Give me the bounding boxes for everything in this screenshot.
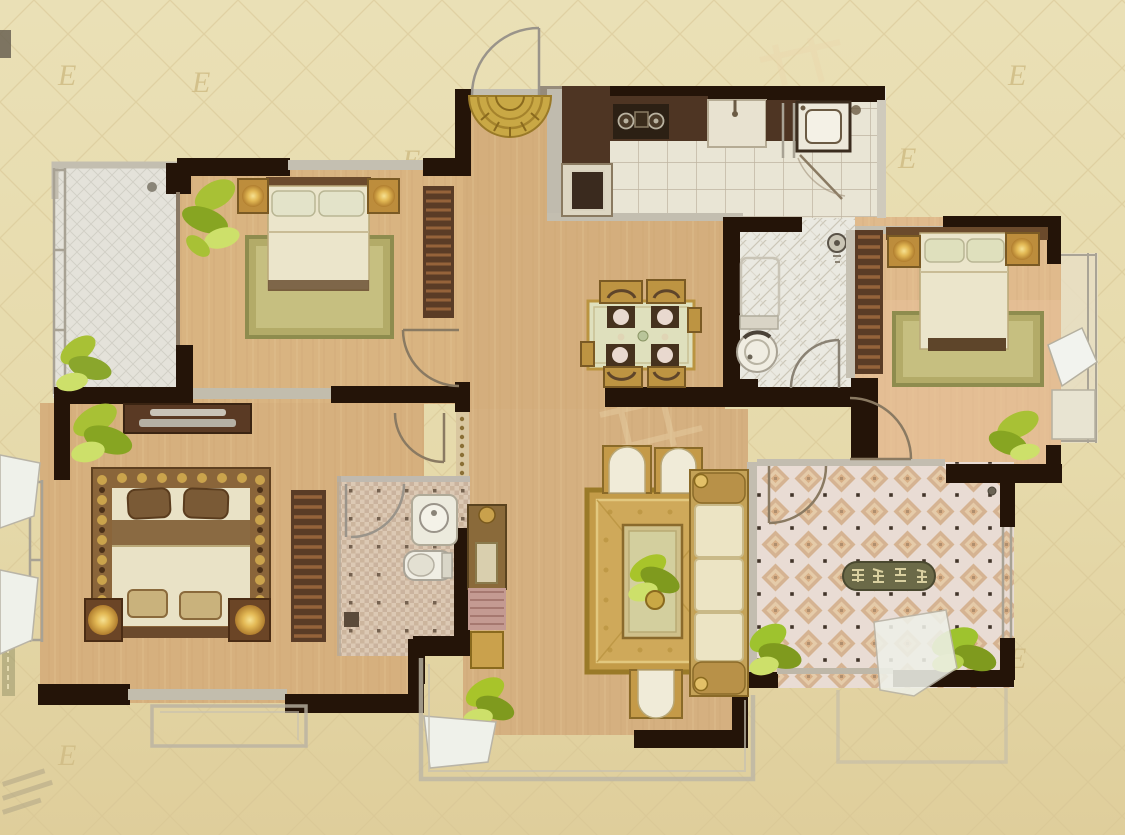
svg-text:E: E: [1007, 59, 1026, 92]
svg-text:E: E: [191, 66, 210, 99]
svg-text:E: E: [57, 739, 76, 772]
svg-text:E: E: [897, 142, 916, 175]
svg-text:E: E: [57, 59, 76, 92]
